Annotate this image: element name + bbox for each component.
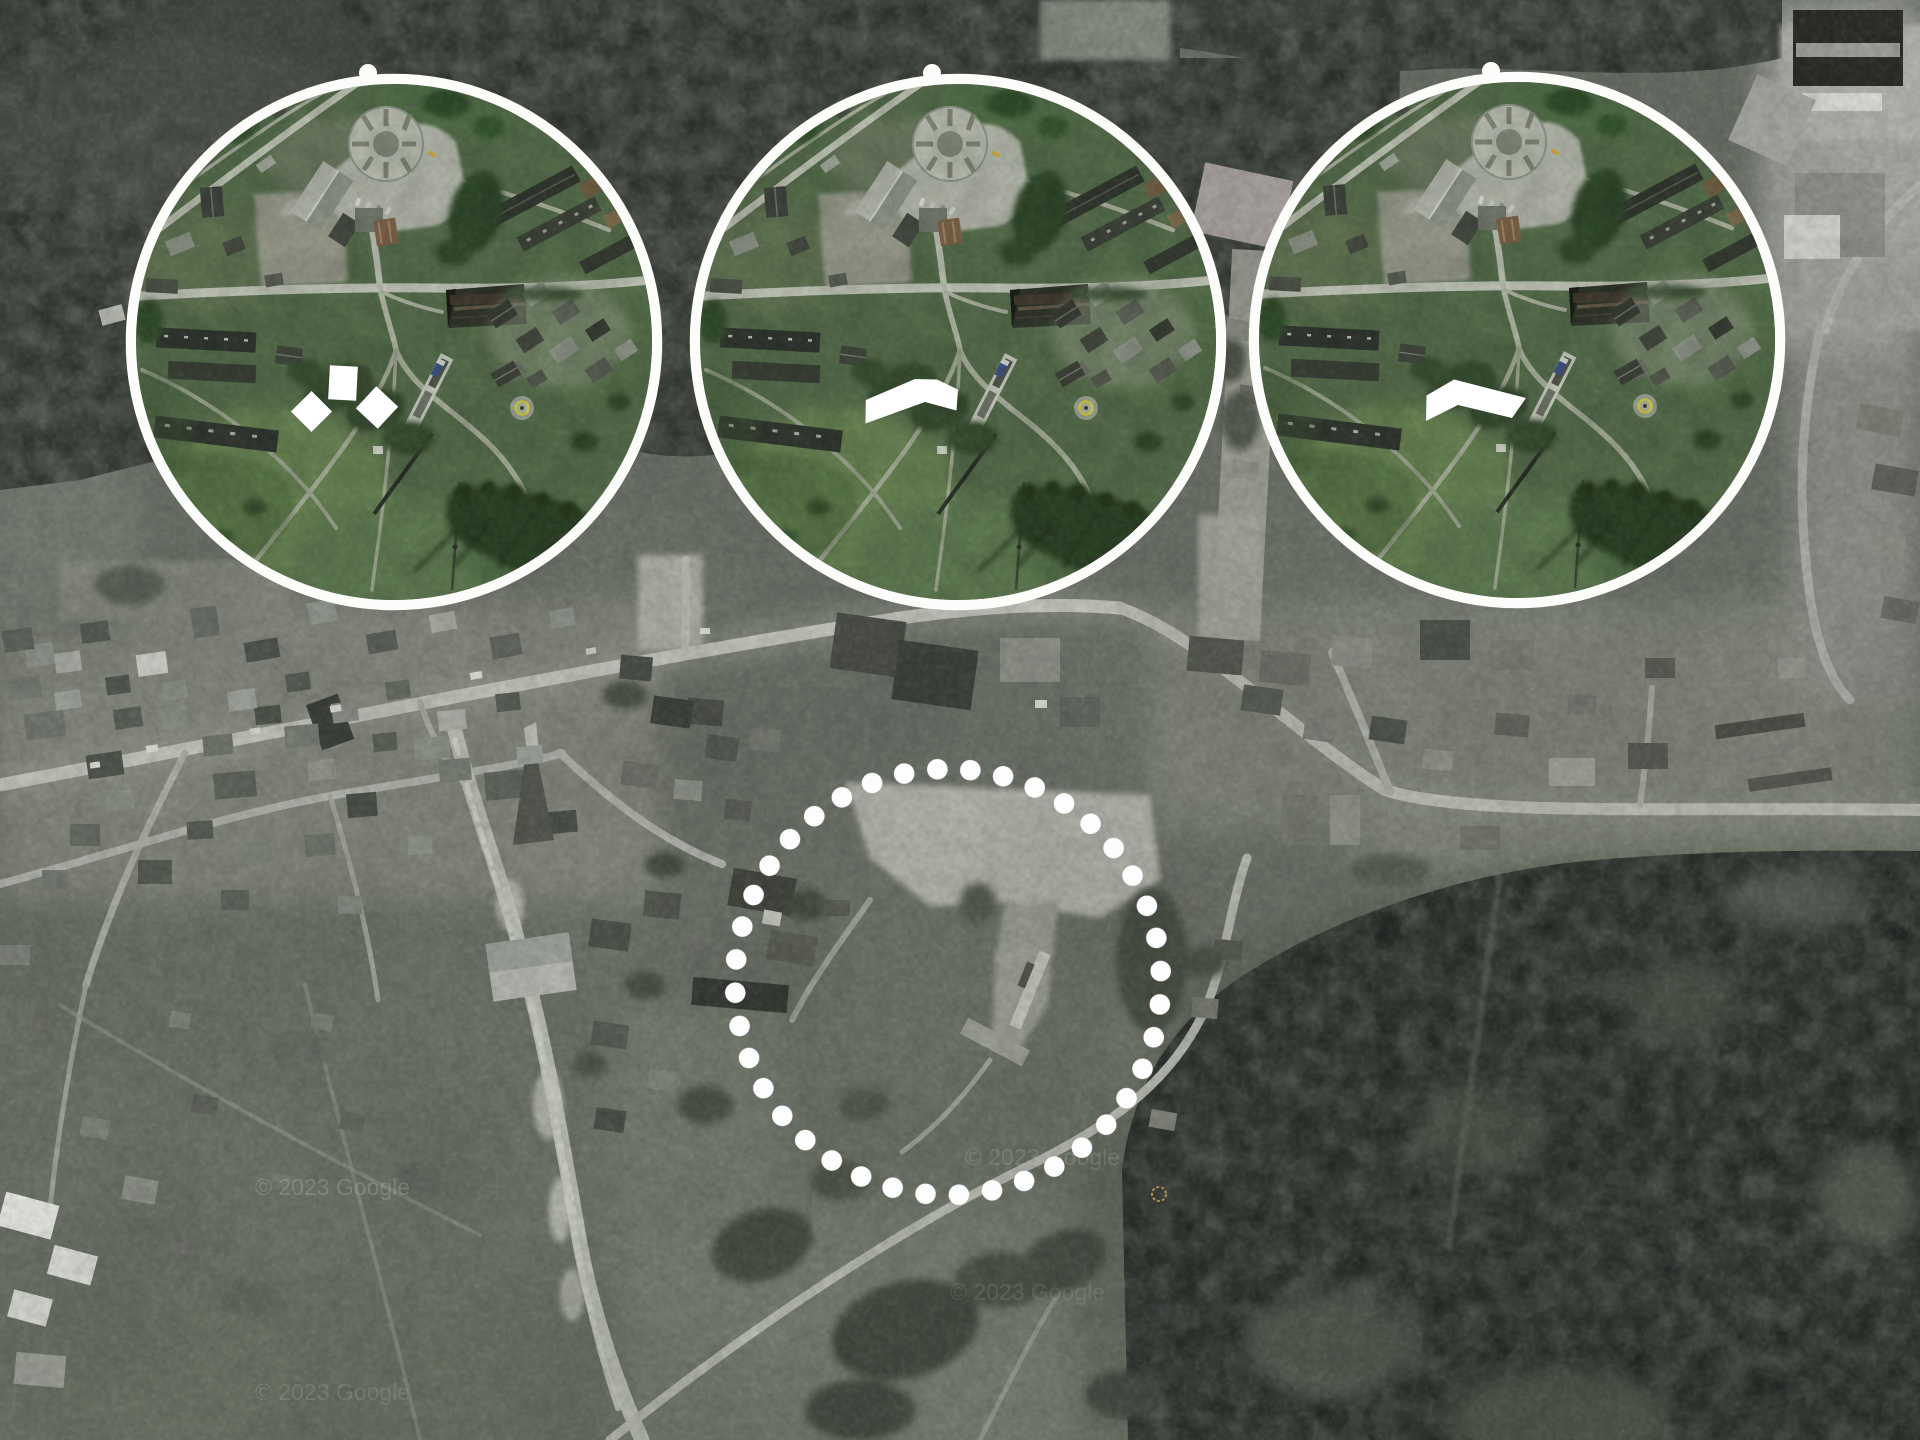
svg-text:© 2023 Google: © 2023 Google [950,1279,1105,1305]
svg-text:© 2023 Google: © 2023 Google [255,1174,410,1200]
svg-text:© 2023 Google: © 2023 Google [965,1144,1120,1170]
svg-text:© 2023 Google: © 2023 Google [255,1379,410,1405]
